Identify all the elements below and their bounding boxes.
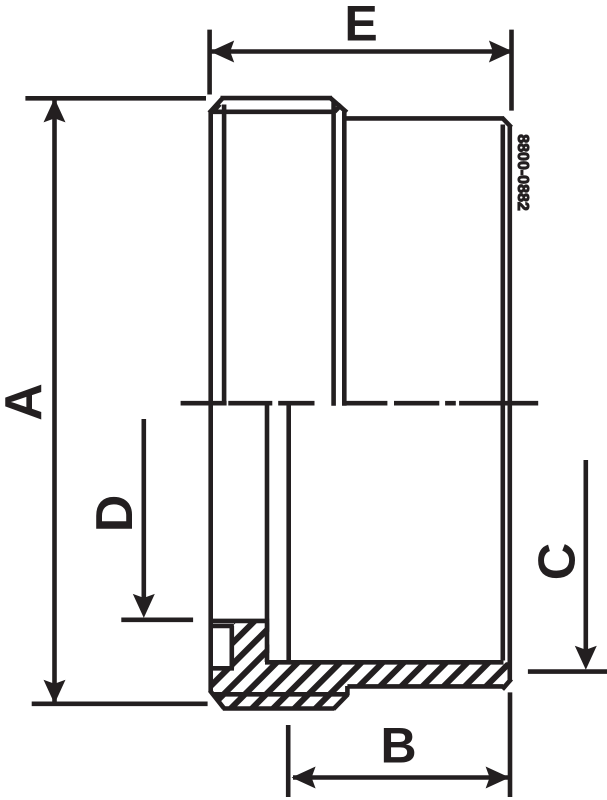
svg-text:D: D <box>86 495 144 533</box>
svg-text:A: A <box>0 383 53 421</box>
svg-text:8800-0882: 8800-0882 <box>514 134 531 211</box>
svg-text:B: B <box>380 718 416 774</box>
svg-text:C: C <box>529 543 587 581</box>
svg-text:E: E <box>344 0 377 52</box>
